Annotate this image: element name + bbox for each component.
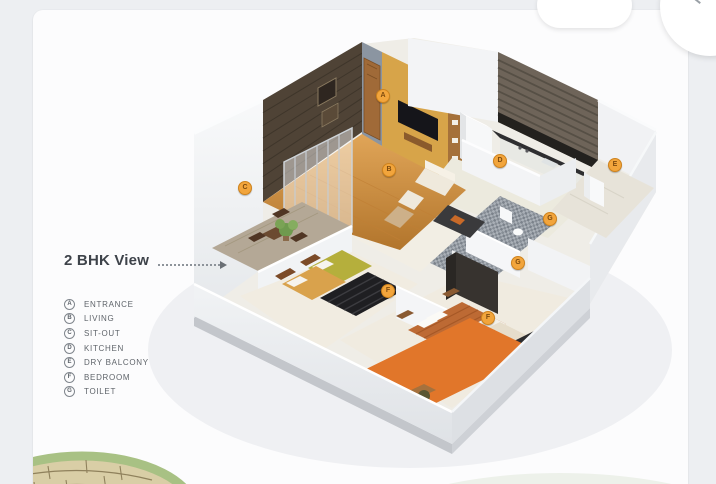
legend-title: 2 BHK View xyxy=(64,252,264,269)
legend-item-label: KITCHEN xyxy=(84,344,124,353)
dotted-arrow xyxy=(158,264,220,266)
marker-entrance: A xyxy=(376,89,390,103)
marker-bedroom-2: F xyxy=(481,311,495,325)
legend-item-entrance: A ENTRANCE xyxy=(64,297,264,312)
legend-item-label: DRY BALCONY xyxy=(84,358,149,367)
legend-item-toilet: G TOILET xyxy=(64,385,264,400)
floorplan-illustration xyxy=(0,0,716,484)
page-background: { "page": { "background_color": "#edeff2… xyxy=(0,0,716,484)
circled-letter-icon: D xyxy=(64,343,75,354)
marker-bedroom-1: F xyxy=(381,284,395,298)
legend-item-label: SIT-OUT xyxy=(84,329,120,338)
circled-letter-icon: E xyxy=(64,357,75,368)
marker-living: B xyxy=(382,163,396,177)
marker-dry-balcony: E xyxy=(608,158,622,172)
legend-item-label: LIVING xyxy=(84,314,114,323)
legend-item-bedroom: F BEDROOM xyxy=(64,370,264,385)
legend-item-kitchen: D KITCHEN xyxy=(64,341,264,356)
legend-item-label: TOILET xyxy=(84,387,116,396)
circled-letter-icon: A xyxy=(64,299,75,310)
button-glyph-icon xyxy=(694,0,701,4)
marker-sit-out: C xyxy=(238,181,252,195)
legend-item-sit-out: C SIT-OUT xyxy=(64,326,264,341)
marker-kitchen: D xyxy=(493,154,507,168)
circled-letter-icon: C xyxy=(64,328,75,339)
marker-toilet-2: G xyxy=(511,256,525,270)
legend-item-label: BEDROOM xyxy=(84,373,130,382)
legend: 2 BHK View A ENTRANCE B LIVING C SIT-OUT… xyxy=(64,252,264,399)
legend-item-dry-balcony: E DRY BALCONY xyxy=(64,355,264,370)
circled-letter-icon: F xyxy=(64,372,75,383)
arrowhead-icon xyxy=(220,261,227,269)
floating-pill-button[interactable] xyxy=(537,0,632,28)
toilet-seat-1 xyxy=(513,229,523,236)
circled-letter-icon: G xyxy=(64,386,75,397)
circled-letter-icon: B xyxy=(64,313,75,324)
marker-toilet-1: G xyxy=(543,212,557,226)
legend-item-label: ENTRANCE xyxy=(84,300,134,309)
legend-item-living: B LIVING xyxy=(64,312,264,327)
legend-list: A ENTRANCE B LIVING C SIT-OUT D KITCHEN … xyxy=(64,297,264,399)
